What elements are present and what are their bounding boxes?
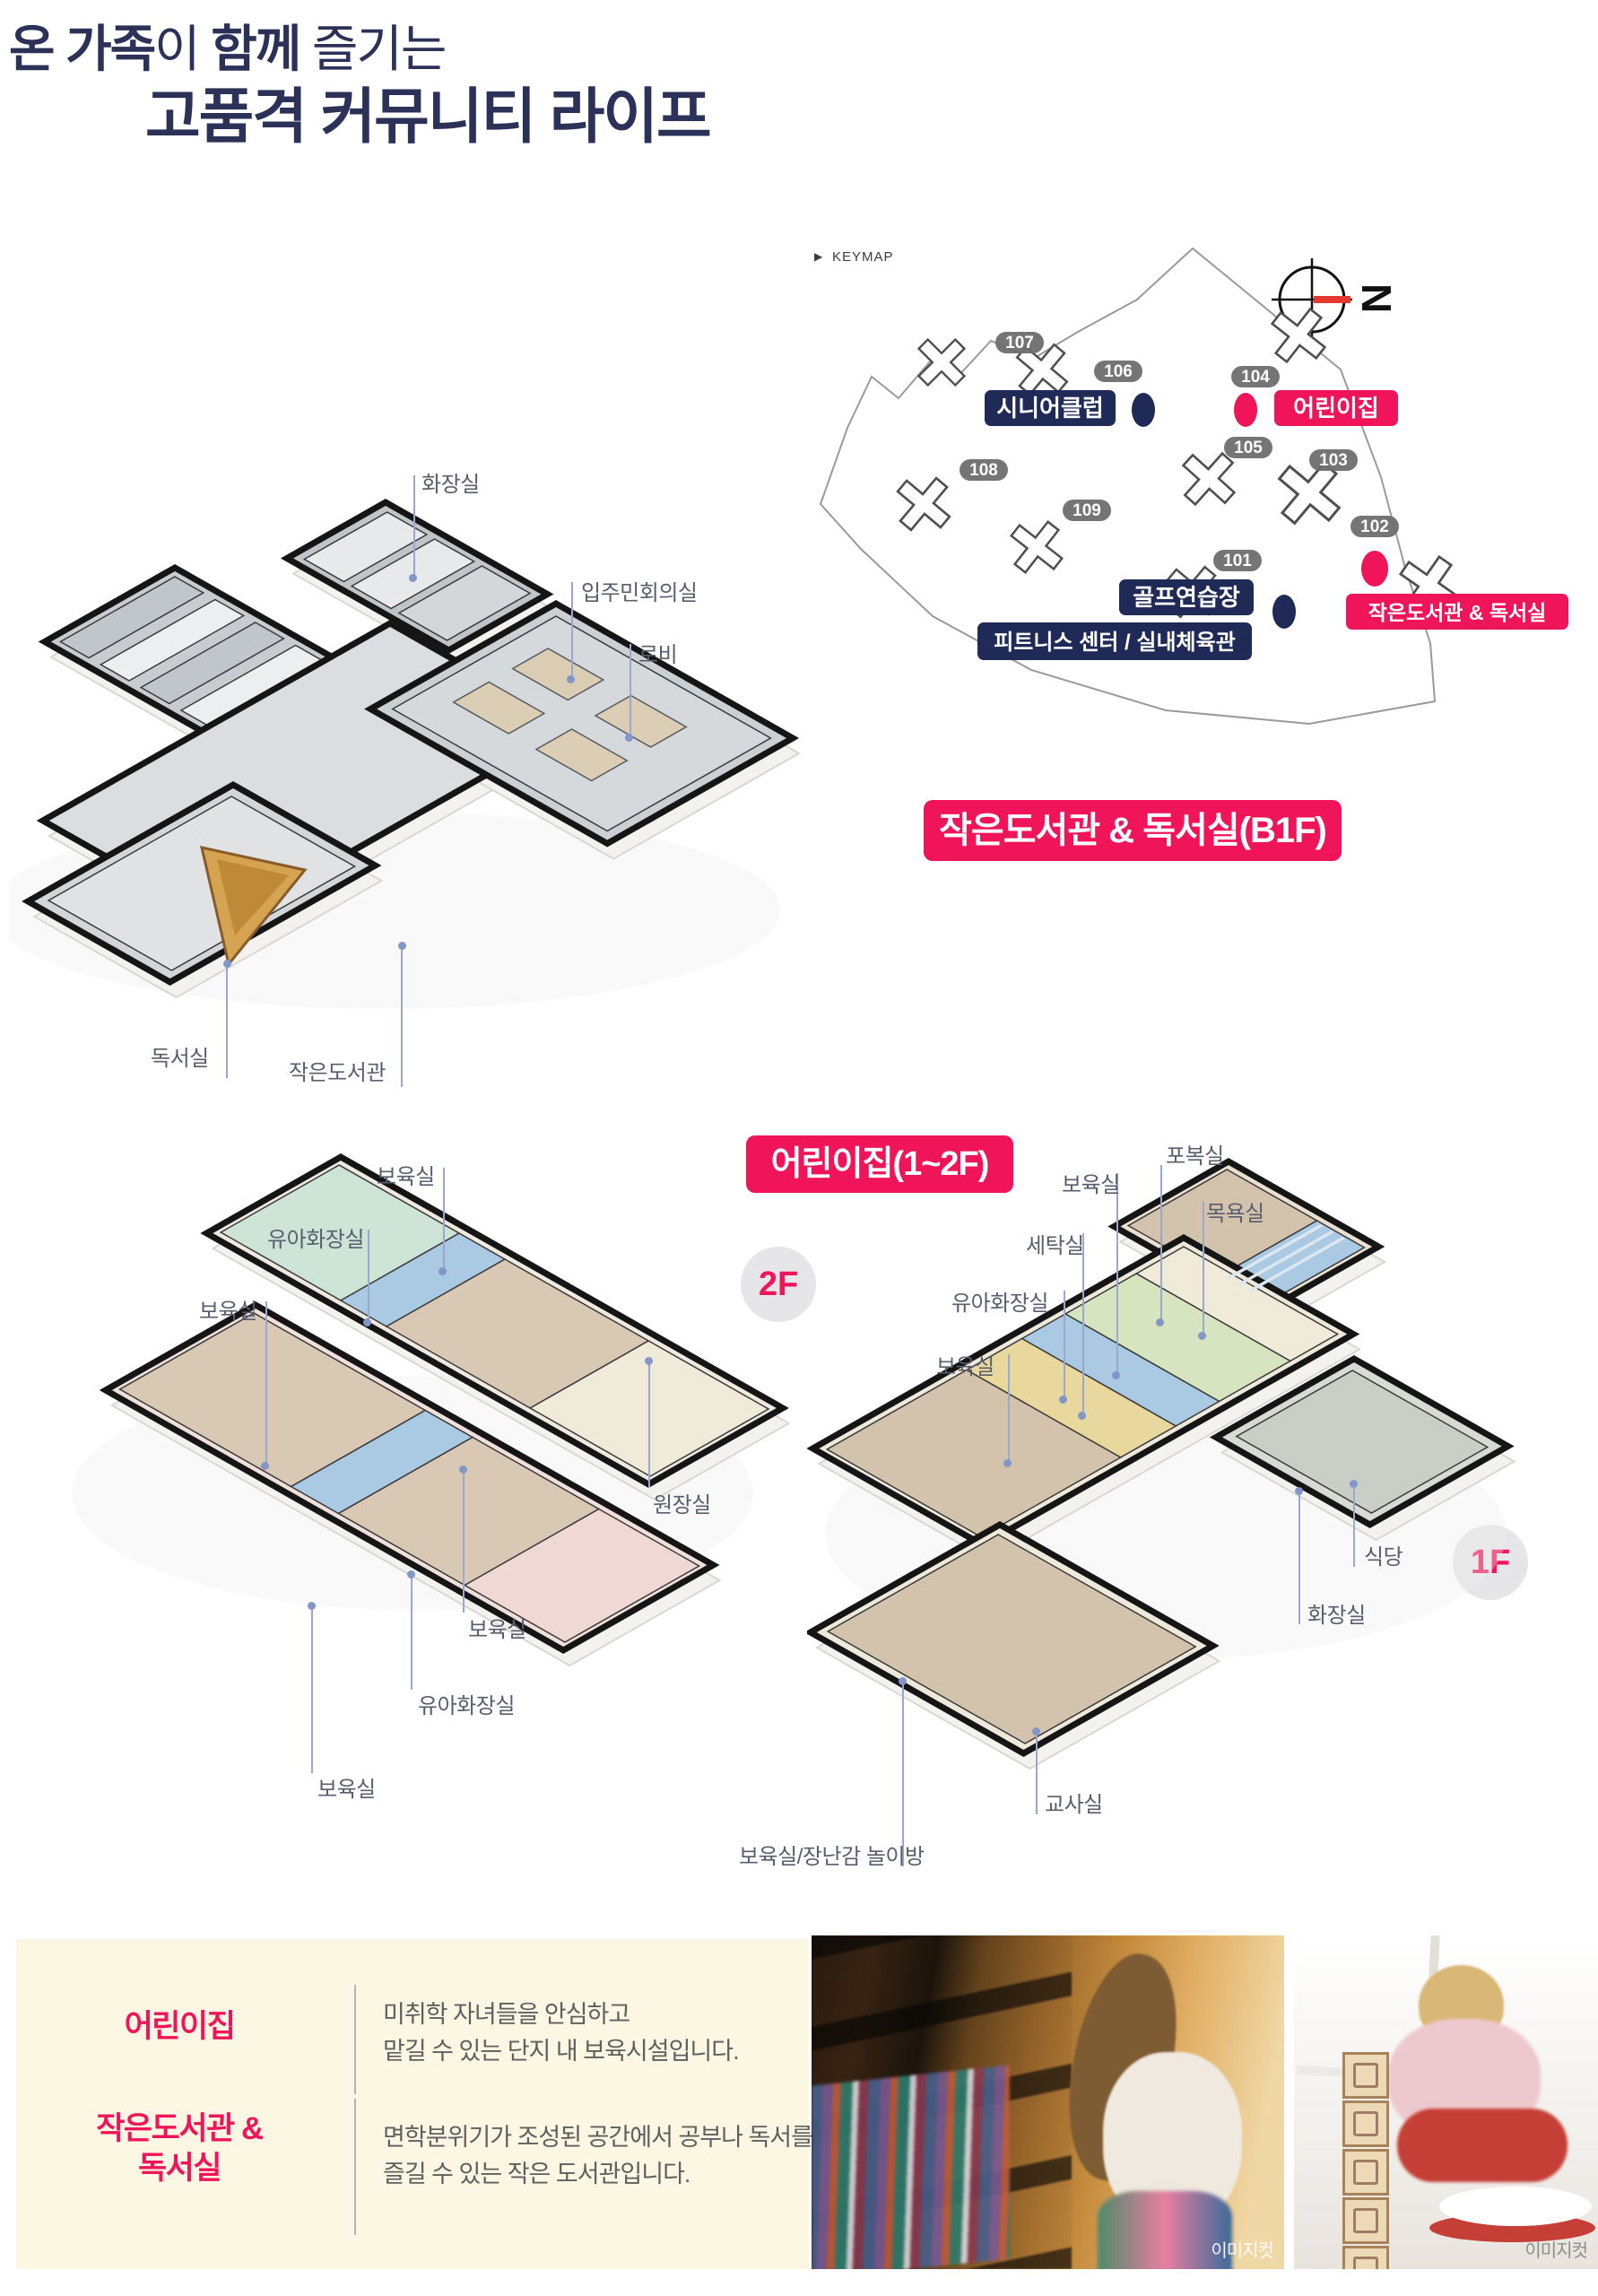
book-spines-art [812,2066,1010,2269]
leader-line [1160,1165,1162,1323]
info-desc-line: 미취학 자녀들을 안심하고 [383,1996,739,2033]
building-badge-107: 107 [995,332,1044,353]
leader-dot [261,1462,269,1470]
title-bold: 온 가족 [9,21,154,77]
info-title-text: 독서실 [18,2149,341,2188]
keymap-arrow-icon: ▶ [814,250,823,263]
svg-text:105: 105 [1234,439,1263,457]
page-title-line2: 고품격 커뮤니티 라이프 [145,68,710,155]
leader-dot [1198,1332,1206,1340]
info-title-text: 어린이집 [125,2009,235,2044]
leader-dot [409,574,417,582]
leader-dot [899,1677,907,1685]
leader-line [1064,1291,1065,1400]
keymap-title: KEYMAP [832,249,894,265]
info-desc-library: 면학분위기가 조성된 공간에서 공부나 독서를 즐길 수 있는 작은 도서관입니… [383,2119,812,2192]
room-label: 유아화장실 [418,1688,515,1719]
leader-dot [1059,1396,1067,1404]
room-label: 원장실 [653,1487,711,1518]
info-title-library: 작은도서관 & 독서실 [18,2109,341,2188]
leader-dot [1295,1487,1303,1495]
leader-dot [1032,1727,1040,1735]
room-label: 보육실 [317,1771,376,1803]
room-label: 보육실 [936,1349,994,1380]
leader-dot [567,675,575,683]
building-badge-106: 106 [1094,361,1142,382]
senior-club-dot [1132,393,1155,427]
leader-dot [407,1570,415,1578]
fitness-dot [1272,595,1296,629]
section-title-library: 작은도서관 & 독서실(B1F) [924,800,1342,861]
building-badge-108: 108 [960,459,1008,481]
room-label: 세탁실 [1026,1228,1084,1259]
building-badge-101: 101 [1213,550,1262,571]
building-badge-109: 109 [1063,500,1111,521]
leader-line [1353,1484,1355,1567]
room-label: 식당 [1364,1539,1403,1570]
photo-caption: 이미지컷 [1524,2236,1587,2262]
daycare-dot [1234,393,1257,427]
facility-label-fitness: 피트니스 센터 / 실내체육관 [977,622,1252,660]
facility-label-golf: 골프연습장 [1119,579,1254,615]
leader-dot [1156,1318,1164,1326]
leader-line [1082,1233,1084,1416]
svg-text:106: 106 [1104,362,1133,381]
room-label: 목욕실 [1206,1196,1264,1227]
room-label: 독서실 [151,1040,209,1072]
toy-blocks-art [1342,2052,1389,2269]
info-title-text: 작은도서관 & [18,2109,341,2149]
svg-text:피트니스 센터 / 실내체육관: 피트니스 센터 / 실내체육관 [994,631,1236,655]
room-label: 작은도서관 [289,1055,386,1086]
room-label: 교사실 [1045,1787,1103,1818]
keymap: ▶ KEYMAP N 101 102 103 104 105 106 [807,235,1598,733]
leader-dot [439,1267,447,1275]
svg-text:골프연습장: 골프연습장 [1133,584,1240,611]
photo-library-girl: 이미지컷 [812,1935,1284,2269]
leader-line [1298,1492,1300,1624]
leader-line [463,1471,465,1613]
info-divider [354,2099,356,2235]
leader-dot [308,1602,316,1610]
leader-line [1203,1202,1204,1336]
leader-dot [1003,1459,1012,1467]
leader-line [1116,1173,1118,1376]
room-label: 보육실 [199,1293,257,1325]
leader-line [411,1575,413,1690]
svg-text:시니어클럽: 시니어클럽 [996,395,1104,422]
daycare-1f-floorplan [807,1130,1578,1937]
room-label: 포복실 [1166,1138,1224,1170]
building-badge-105: 105 [1224,437,1272,458]
svg-text:108: 108 [969,461,998,480]
leader-line [368,1230,369,1323]
facility-label-senior-club: 시니어클럽 [985,390,1116,426]
room-label: 보육실 [1062,1167,1120,1198]
leader-line [226,965,228,1078]
leader-dot [363,1318,371,1326]
leader-dot [1078,1412,1086,1420]
room-label: 로비 [638,637,677,668]
info-desc-line: 면학분위기가 조성된 공간에서 공부나 독서를 [383,2119,812,2156]
building-badge-104: 104 [1231,366,1280,387]
leader-line [1036,1732,1038,1814]
info-title-daycare: 어린이집 [18,2007,341,2047]
room-label: 유아화장실 [267,1222,364,1253]
leader-line [648,1362,650,1488]
leader-dot [645,1357,653,1365]
svg-text:103: 103 [1319,451,1348,470]
leader-dot [625,734,633,742]
leader-line [265,1301,267,1466]
building-badge-102: 102 [1350,516,1399,537]
room-label: 화장실 [1307,1597,1366,1629]
svg-text:107: 107 [1005,334,1034,352]
svg-text:작은도서관 & 독서실: 작은도서관 & 독서실 [1368,601,1547,624]
photo-toddler-blocks: 이미지컷 [1294,1935,1598,2269]
photo-caption: 이미지컷 [1211,2236,1273,2262]
leader-dot [223,960,231,968]
leader-line [571,582,573,681]
facility-label-library: 작은도서관 & 독서실 [1346,594,1568,630]
leader-dot [459,1465,467,1474]
facility-label-daycare: 어린이집 [1274,390,1398,426]
leader-dot [1112,1371,1120,1379]
info-desc-daycare: 미취학 자녀들을 안심하고 맡길 수 있는 단지 내 보육시설입니다. [383,1996,739,2069]
room-label: 유아화장실 [951,1285,1048,1317]
svg-text:102: 102 [1360,517,1389,536]
svg-text:101: 101 [1223,552,1252,570]
info-desc-line: 맡길 수 있는 단지 내 보육시설입니다. [383,2033,739,2070]
leader-line [413,475,415,578]
library-floorplan [9,489,906,1081]
leader-dot [1350,1480,1358,1488]
brochure-page: 온 가족이 함께 즐기는 고품격 커뮤니티 라이프 ▶ KEYMAP N 10 [0,0,1598,2296]
svg-text:109: 109 [1073,501,1101,520]
leader-dot [398,942,406,950]
leader-line [1008,1354,1010,1464]
leader-line [401,947,403,1087]
leader-line [443,1168,445,1271]
svg-text:104: 104 [1241,368,1270,387]
room-label: 입주민회의실 [581,575,697,606]
leader-line [630,644,631,739]
toddler-figure-art [1397,2109,1568,2182]
toy-art [1439,2187,1592,2226]
room-label: 보육실/장난감 놀이방 [739,1839,925,1870]
info-box [16,1939,809,2269]
north-letter: N [1353,283,1400,313]
svg-text:어린이집: 어린이집 [1293,395,1379,422]
room-label: 보육실 [468,1612,526,1643]
info-divider [354,1985,356,2094]
leader-line [311,1606,313,1773]
building-badge-103: 103 [1309,449,1358,471]
room-label: 보육실 [377,1159,435,1190]
info-desc-line: 즐길 수 있는 작은 도서관입니다. [383,2156,812,2193]
library-dot [1361,551,1388,587]
room-label: 화장실 [421,466,480,498]
